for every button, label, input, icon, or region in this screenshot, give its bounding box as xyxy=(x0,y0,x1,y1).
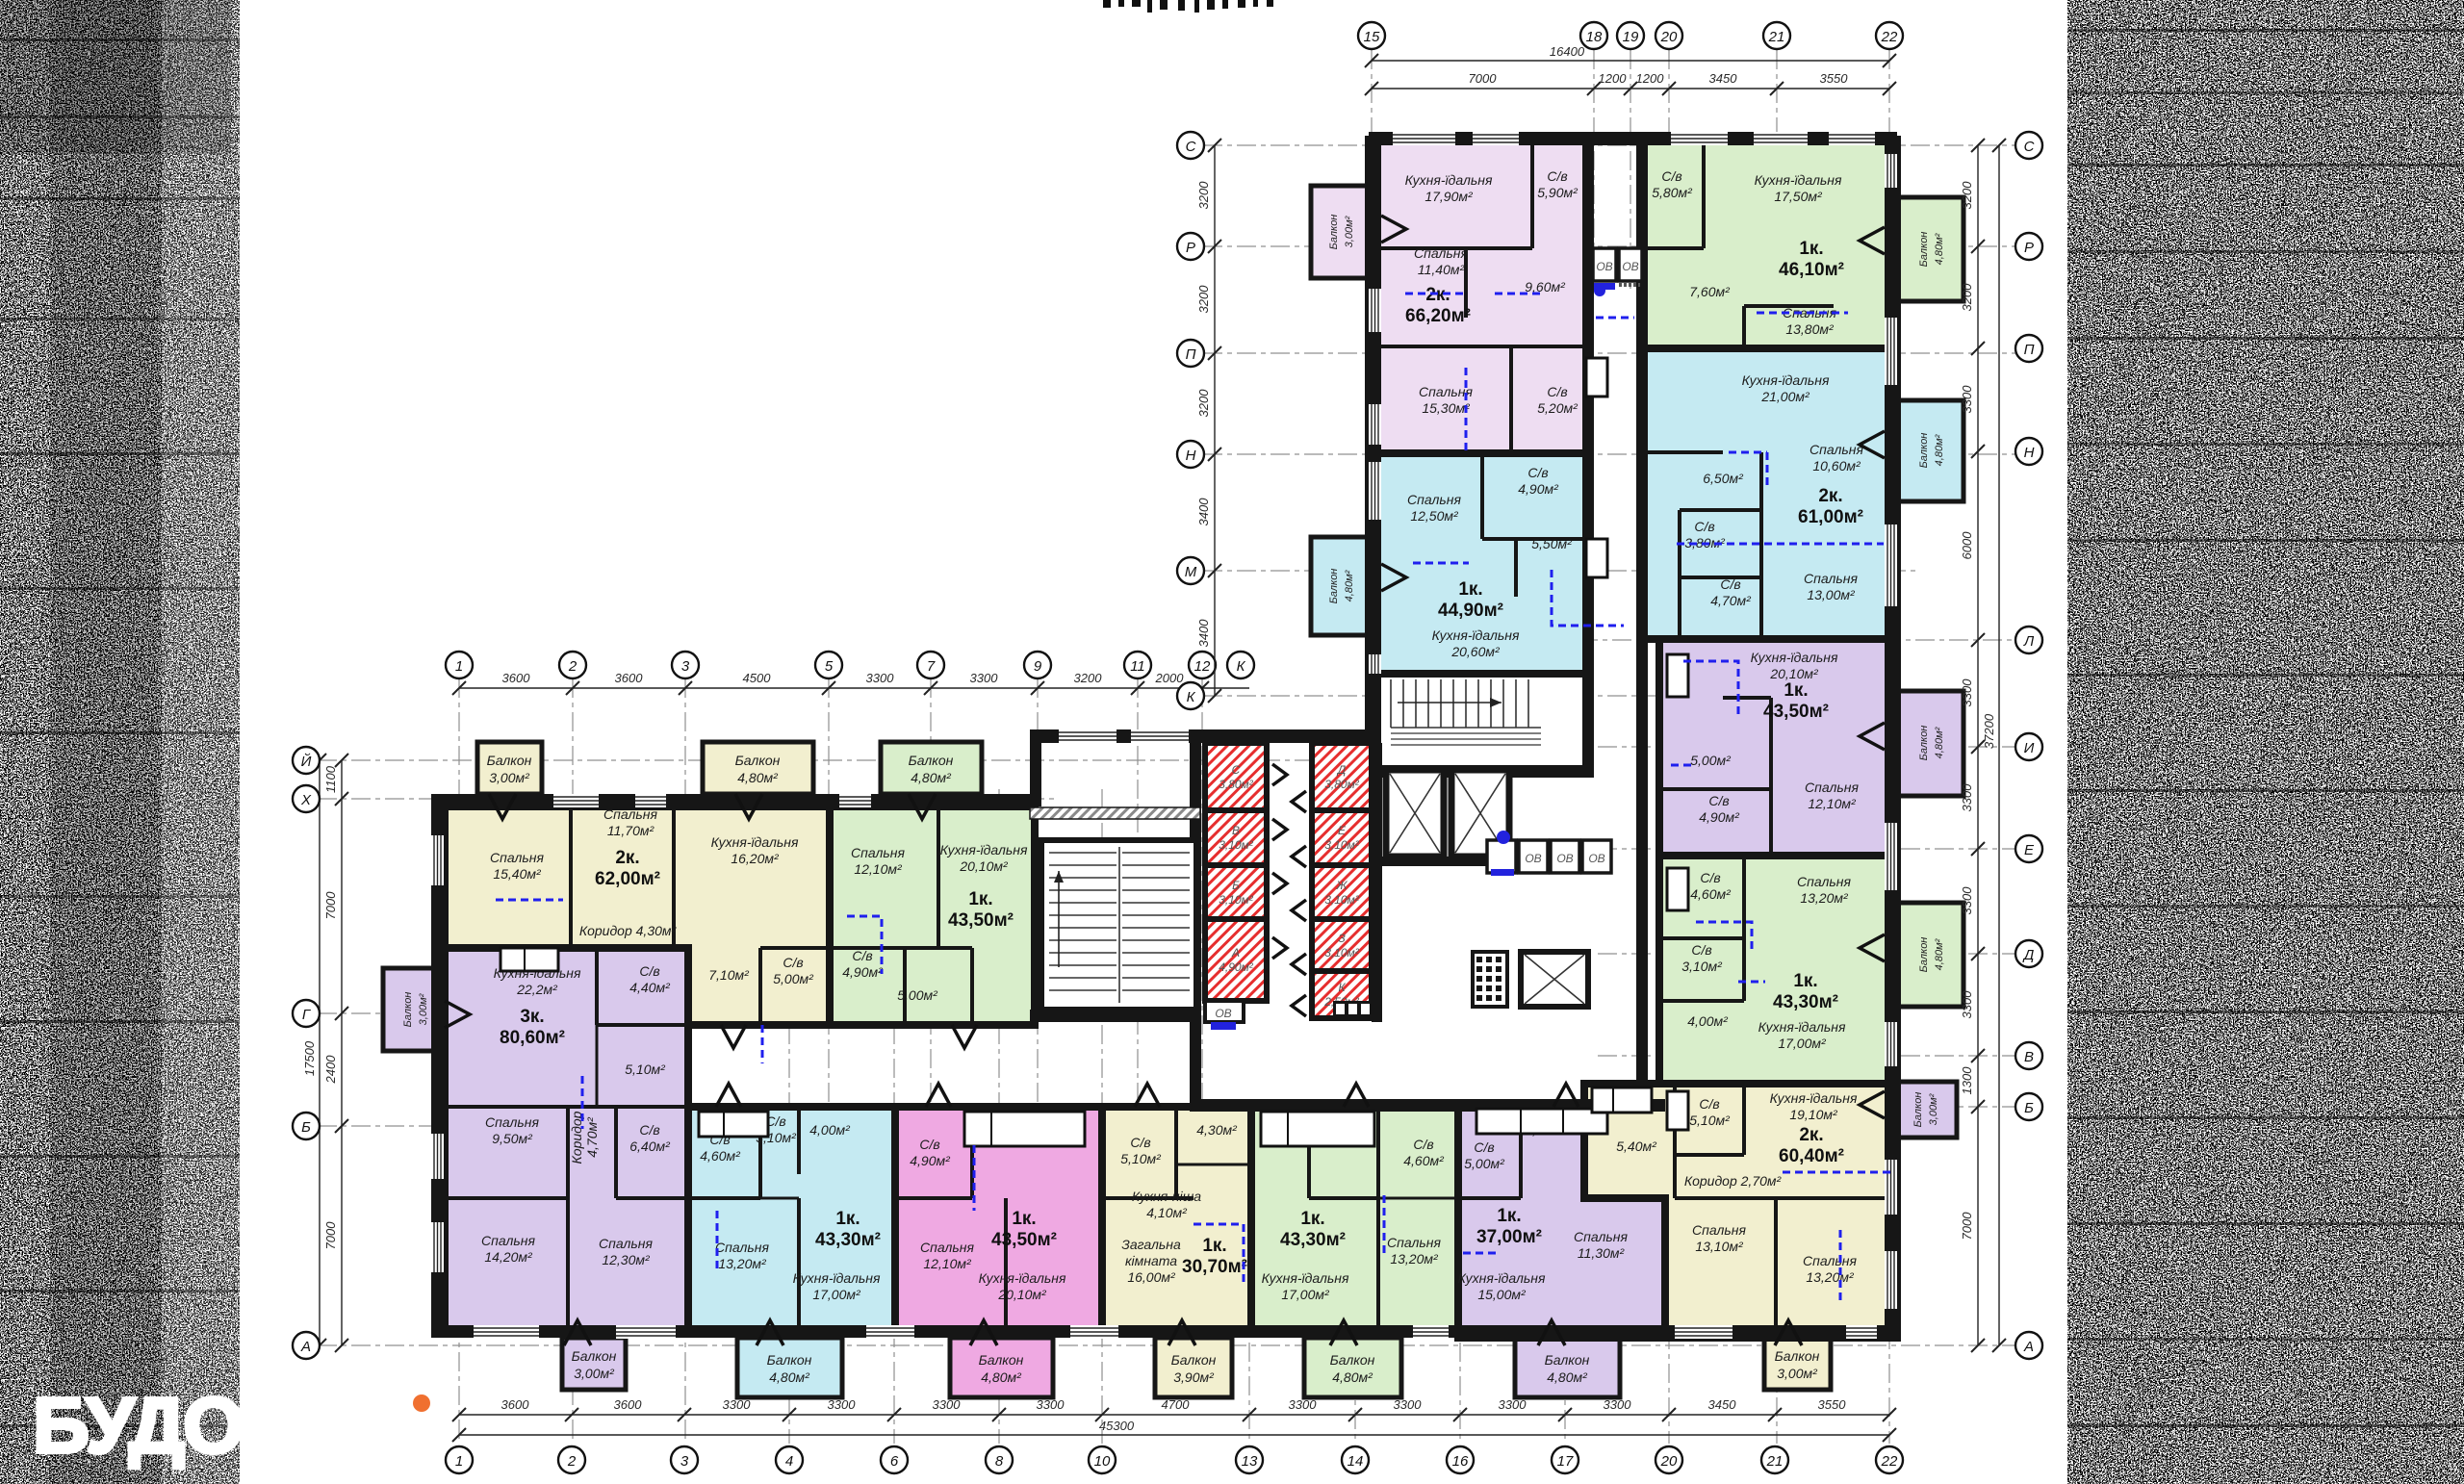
svg-text:3200: 3200 xyxy=(1196,285,1211,314)
svg-text:3300: 3300 xyxy=(970,671,999,685)
svg-text:Р: Р xyxy=(1186,240,1195,256)
svg-text:17,00м²: 17,00м² xyxy=(1281,1287,1330,1302)
svg-text:ОВ: ОВ xyxy=(1622,260,1638,273)
svg-text:Балкон: Балкон xyxy=(1328,215,1340,250)
svg-text:3,10м²: 3,10м² xyxy=(1219,893,1254,907)
svg-text:13,00м²: 13,00м² xyxy=(1807,587,1856,602)
svg-text:7000: 7000 xyxy=(323,1221,338,1250)
svg-text:3300: 3300 xyxy=(1960,678,1974,707)
svg-text:43,50м²: 43,50м² xyxy=(948,910,1014,931)
svg-text:Н: Н xyxy=(2024,445,2035,461)
svg-text:Спальня: Спальня xyxy=(851,845,905,860)
svg-text:13,20м²: 13,20м² xyxy=(1806,1269,1855,1285)
svg-text:4,30м²: 4,30м² xyxy=(1196,1122,1238,1138)
svg-text:Д: Д xyxy=(2022,947,2035,963)
svg-text:П: П xyxy=(2024,342,2035,358)
svg-text:5,10м²: 5,10м² xyxy=(1120,1151,1162,1166)
svg-text:4,80м²: 4,80м² xyxy=(1547,1369,1588,1385)
svg-text:5: 5 xyxy=(825,658,834,675)
svg-text:3: 3 xyxy=(680,1453,689,1470)
svg-text:3450: 3450 xyxy=(1709,71,1738,86)
svg-text:13,10м²: 13,10м² xyxy=(1695,1239,1744,1254)
svg-text:9: 9 xyxy=(1034,658,1042,675)
svg-text:3300: 3300 xyxy=(1394,1397,1423,1412)
svg-text:4,40м²: 4,40м² xyxy=(629,980,671,995)
svg-text:3к.: 3к. xyxy=(520,1007,544,1027)
svg-text:5,40м²: 5,40м² xyxy=(1616,1139,1657,1154)
svg-text:4,60м²: 4,60м² xyxy=(1690,886,1732,902)
svg-text:Х: Х xyxy=(300,792,312,808)
svg-text:Е: Е xyxy=(1338,824,1347,837)
svg-text:4,90м²: 4,90м² xyxy=(1518,481,1559,497)
svg-text:15,00м²: 15,00м² xyxy=(1477,1287,1527,1302)
svg-text:2к.: 2к. xyxy=(1799,1125,1823,1145)
svg-text:2: 2 xyxy=(567,1453,577,1470)
svg-text:17500: 17500 xyxy=(302,1040,317,1076)
svg-text:Кухня-їдальня: Кухня-їдальня xyxy=(1755,172,1842,188)
svg-text:3200: 3200 xyxy=(1196,181,1211,210)
svg-text:15: 15 xyxy=(1364,29,1380,45)
svg-text:4700: 4700 xyxy=(1162,1397,1191,1412)
svg-text:3,90м²: 3,90м² xyxy=(1173,1369,1215,1385)
svg-text:6000: 6000 xyxy=(1960,531,1974,560)
svg-text:4,80м²: 4,80м² xyxy=(1934,434,1945,466)
svg-text:11: 11 xyxy=(1130,658,1145,675)
svg-text:Спальня: Спальня xyxy=(1809,442,1863,457)
svg-text:7: 7 xyxy=(927,658,936,675)
svg-text:3300: 3300 xyxy=(723,1397,752,1412)
svg-text:Загальна: Загальна xyxy=(1121,1237,1181,1252)
svg-text:Коридор 2,70м²: Коридор 2,70м² xyxy=(1684,1173,1783,1189)
svg-text:4,70м²: 4,70м² xyxy=(1710,593,1752,608)
svg-text:3,00м²: 3,00м² xyxy=(1777,1366,1818,1381)
svg-text:3,10м²: 3,10м² xyxy=(1681,959,1723,974)
svg-text:1к.: 1к. xyxy=(1012,1209,1036,1229)
svg-text:С/в: С/в xyxy=(1694,519,1714,534)
svg-text:Спальня: Спальня xyxy=(1692,1222,1746,1238)
svg-text:С/в: С/в xyxy=(1700,870,1720,885)
svg-text:20: 20 xyxy=(1660,29,1678,45)
svg-text:3300: 3300 xyxy=(1960,886,1974,915)
svg-text:7,10м²: 7,10м² xyxy=(708,967,750,983)
svg-text:5,50м²: 5,50м² xyxy=(1531,536,1573,551)
svg-text:17: 17 xyxy=(1557,1453,1574,1470)
svg-text:3300: 3300 xyxy=(1604,1397,1632,1412)
svg-text:1к.: 1к. xyxy=(1799,239,1823,259)
svg-text:22: 22 xyxy=(1881,29,1898,45)
svg-text:2: 2 xyxy=(568,658,577,675)
svg-text:Кухня-їдальня: Кухня-їдальня xyxy=(979,1270,1066,1286)
svg-text:3,10м²: 3,10м² xyxy=(1324,946,1360,959)
svg-text:Кухня-їдальня: Кухня-їдальня xyxy=(1742,372,1830,388)
svg-text:11,30м²: 11,30м² xyxy=(1578,1245,1626,1261)
svg-text:5,20м²: 5,20м² xyxy=(1537,400,1578,416)
svg-text:21: 21 xyxy=(1768,29,1785,45)
svg-text:6,40м²: 6,40м² xyxy=(629,1139,671,1154)
svg-text:3400: 3400 xyxy=(1196,619,1211,648)
svg-text:С/в: С/в xyxy=(783,955,803,970)
svg-text:Балкон: Балкон xyxy=(572,1348,617,1364)
svg-text:Кухня-їдальня: Кухня-їдальня xyxy=(940,842,1028,857)
svg-text:кімната: кімната xyxy=(1125,1253,1177,1268)
svg-text:Спальня: Спальня xyxy=(1804,571,1858,586)
svg-text:А: А xyxy=(300,1339,311,1355)
svg-text:4,60м²: 4,60м² xyxy=(700,1148,741,1164)
svg-text:3,00м²: 3,00м² xyxy=(418,993,429,1025)
svg-text:Спальня: Спальня xyxy=(1407,492,1461,507)
svg-text:22,2м²: 22,2м² xyxy=(516,982,558,997)
svg-text:14: 14 xyxy=(1347,1453,1364,1470)
svg-text:1200: 1200 xyxy=(1636,71,1665,86)
svg-text:20: 20 xyxy=(1660,1453,1678,1470)
svg-text:4,70м²: 4,70м² xyxy=(584,1116,600,1158)
svg-text:5,80м²: 5,80м² xyxy=(1652,185,1693,200)
svg-text:Балкон: Балкон xyxy=(1918,232,1930,268)
svg-text:9,50м²: 9,50м² xyxy=(492,1131,533,1146)
svg-text:17,50м²: 17,50м² xyxy=(1774,189,1823,204)
svg-text:Балкон: Балкон xyxy=(1775,1348,1820,1364)
svg-text:1к.: 1к. xyxy=(968,889,992,909)
svg-text:3600: 3600 xyxy=(501,1397,530,1412)
svg-text:4,80м²: 4,80м² xyxy=(1934,233,1945,265)
svg-text:ОВ: ОВ xyxy=(1556,852,1573,865)
svg-text:1300: 1300 xyxy=(1960,1066,1974,1095)
svg-text:20,60м²: 20,60м² xyxy=(1450,644,1501,659)
svg-text:3200: 3200 xyxy=(1196,389,1211,418)
svg-text:Спальня: Спальня xyxy=(485,1114,539,1130)
svg-text:П: П xyxy=(1186,346,1196,363)
svg-text:3450: 3450 xyxy=(1708,1397,1737,1412)
svg-text:14,20м²: 14,20м² xyxy=(484,1249,533,1265)
svg-text:43,30м²: 43,30м² xyxy=(815,1230,881,1250)
svg-text:60,40м²: 60,40м² xyxy=(1779,1146,1844,1166)
svg-text:К: К xyxy=(1187,689,1196,705)
svg-text:С/в: С/в xyxy=(1527,465,1548,480)
svg-text:Кухня-їдальня: Кухня-їдальня xyxy=(1405,172,1493,188)
svg-text:12,10м²: 12,10м² xyxy=(854,861,903,877)
svg-text:Спальня: Спальня xyxy=(481,1233,535,1248)
svg-text:Балкон: Балкон xyxy=(402,992,414,1028)
svg-text:44,90м²: 44,90м² xyxy=(1438,601,1503,621)
svg-text:16400: 16400 xyxy=(1550,44,1585,59)
svg-text:Кухня-їдальня: Кухня-їдальня xyxy=(1262,1270,1349,1286)
svg-text:Й: Й xyxy=(301,753,312,770)
svg-text:4: 4 xyxy=(785,1453,793,1470)
svg-text:10,60м²: 10,60м² xyxy=(1812,458,1861,473)
svg-text:С/в: С/в xyxy=(1691,942,1711,958)
svg-text:5,10м²: 5,10м² xyxy=(1689,1113,1731,1128)
svg-text:43,50м²: 43,50м² xyxy=(1763,702,1829,722)
svg-text:В: В xyxy=(1232,824,1240,837)
svg-text:4,80м²: 4,80м² xyxy=(769,1369,810,1385)
svg-text:19,10м²: 19,10м² xyxy=(1789,1107,1838,1122)
svg-text:13,80м²: 13,80м² xyxy=(1785,321,1835,337)
svg-text:Спальня: Спальня xyxy=(920,1240,974,1255)
svg-text:62,00м²: 62,00м² xyxy=(595,869,660,889)
svg-text:12,10м²: 12,10м² xyxy=(1808,796,1857,811)
svg-text:12,50м²: 12,50м² xyxy=(1410,508,1459,524)
svg-text:Спальня: Спальня xyxy=(1414,245,1468,261)
svg-text:5,90м²: 5,90м² xyxy=(1537,185,1578,200)
svg-text:3: 3 xyxy=(681,658,690,675)
svg-text:С/в: С/в xyxy=(1708,793,1729,808)
svg-text:В: В xyxy=(2024,1049,2034,1065)
svg-text:Спальня: Спальня xyxy=(1387,1235,1441,1250)
svg-text:13,20м²: 13,20м² xyxy=(1800,890,1849,906)
svg-text:Кухня-їдальня: Кухня-їдальня xyxy=(1770,1090,1858,1106)
svg-text:С/в: С/в xyxy=(1661,168,1681,184)
svg-text:Спальня: Спальня xyxy=(1797,874,1851,889)
svg-text:Л: Л xyxy=(2023,633,2035,650)
svg-text:3600: 3600 xyxy=(615,671,644,685)
svg-text:С/в: С/в xyxy=(1413,1137,1433,1152)
svg-text:3300: 3300 xyxy=(1289,1397,1318,1412)
svg-text:46,10м²: 46,10м² xyxy=(1779,260,1844,280)
svg-text:3300: 3300 xyxy=(1499,1397,1527,1412)
svg-text:Балкон: Балкон xyxy=(1912,1092,1924,1128)
svg-text:11,70м²: 11,70м² xyxy=(607,823,655,838)
svg-text:Кухня-їдальня: Кухня-їдальня xyxy=(711,834,799,850)
svg-text:А: А xyxy=(2023,1339,2034,1355)
svg-text:3300: 3300 xyxy=(1037,1397,1065,1412)
svg-text:9,60м²: 9,60м² xyxy=(1525,279,1566,294)
svg-text:1200: 1200 xyxy=(1599,71,1628,86)
svg-text:3,00м²: 3,00м² xyxy=(574,1366,615,1381)
svg-text:Д: Д xyxy=(1336,763,1347,777)
svg-text:3300: 3300 xyxy=(828,1397,857,1412)
svg-text:43,30м²: 43,30м² xyxy=(1773,992,1838,1012)
svg-text:5,00м²: 5,00м² xyxy=(1464,1156,1505,1171)
svg-text:С/в: С/в xyxy=(852,948,872,963)
svg-text:4,80м²: 4,80м² xyxy=(911,770,952,785)
svg-text:5,00м²: 5,00м² xyxy=(897,987,938,1003)
svg-text:М: М xyxy=(1185,564,1197,580)
svg-text:12,30м²: 12,30м² xyxy=(602,1252,651,1267)
svg-text:61,00м²: 61,00м² xyxy=(1798,507,1863,527)
svg-text:43,30м²: 43,30м² xyxy=(1280,1230,1346,1250)
svg-text:Балкон: Балкон xyxy=(735,753,781,768)
svg-text:37,00м²: 37,00м² xyxy=(1476,1227,1542,1247)
svg-text:4,00м²: 4,00м² xyxy=(809,1122,851,1138)
svg-text:3,00м²: 3,00м² xyxy=(489,770,530,785)
svg-text:11,40м²: 11,40м² xyxy=(1418,262,1466,277)
svg-text:3,00м²: 3,00м² xyxy=(1928,1093,1939,1125)
svg-text:1к.: 1к. xyxy=(1497,1206,1521,1226)
svg-text:Спальня: Спальня xyxy=(1805,780,1859,795)
svg-text:16,20м²: 16,20м² xyxy=(731,851,780,866)
svg-text:3300: 3300 xyxy=(1960,385,1974,414)
svg-text:5,00м²: 5,00м² xyxy=(1690,753,1732,768)
svg-text:Балкон: Балкон xyxy=(487,753,532,768)
svg-text:Спальня: Спальня xyxy=(490,850,544,865)
svg-text:22: 22 xyxy=(1881,1453,1898,1470)
svg-text:10: 10 xyxy=(1094,1453,1111,1470)
svg-text:Балкон: Балкон xyxy=(909,753,954,768)
svg-text:4,90м²: 4,90м² xyxy=(1699,809,1740,825)
svg-text:С/в: С/в xyxy=(639,1122,659,1138)
svg-text:1к.: 1к. xyxy=(1300,1209,1324,1229)
svg-text:Коридор 4,30м²: Коридор 4,30м² xyxy=(579,923,678,938)
svg-text:С/в: С/в xyxy=(1130,1135,1150,1150)
svg-text:6: 6 xyxy=(890,1453,899,1470)
svg-text:7000: 7000 xyxy=(323,891,338,920)
svg-text:4,80м²: 4,80м² xyxy=(1344,570,1355,601)
svg-text:17,00м²: 17,00м² xyxy=(1778,1036,1827,1051)
svg-text:3,10м²: 3,10м² xyxy=(1219,838,1254,852)
svg-text:7000: 7000 xyxy=(1469,71,1498,86)
svg-text:19: 19 xyxy=(1623,29,1639,45)
svg-text:Е: Е xyxy=(2024,842,2035,858)
svg-text:2к.: 2к. xyxy=(615,848,639,868)
svg-text:И: И xyxy=(2024,740,2035,756)
svg-text:Балкон: Балкон xyxy=(979,1352,1024,1368)
svg-text:БУДО: БУДО xyxy=(33,1382,243,1470)
svg-text:Спальня: Спальня xyxy=(603,806,657,822)
svg-text:3600: 3600 xyxy=(614,1397,643,1412)
svg-text:Балкон: Балкон xyxy=(1918,433,1930,469)
svg-text:С: С xyxy=(1232,763,1241,777)
svg-text:4,90м²: 4,90м² xyxy=(842,964,884,980)
svg-text:3300: 3300 xyxy=(866,671,895,685)
svg-text:С/в: С/в xyxy=(1720,576,1740,592)
svg-text:3600: 3600 xyxy=(502,671,531,685)
svg-text:3550: 3550 xyxy=(1818,1397,1847,1412)
svg-text:Ж: Ж xyxy=(1335,879,1347,892)
svg-text:3300: 3300 xyxy=(933,1397,962,1412)
svg-text:Р: Р xyxy=(2024,240,2034,256)
svg-text:1к.: 1к. xyxy=(1793,971,1817,991)
svg-text:1к.: 1к. xyxy=(1202,1236,1226,1256)
svg-text:А: А xyxy=(1231,946,1240,959)
svg-text:4,80м²: 4,80м² xyxy=(1934,938,1945,970)
svg-text:15,30м²: 15,30м² xyxy=(1422,400,1471,416)
svg-text:ОВ: ОВ xyxy=(1588,852,1604,865)
svg-text:20,10м²: 20,10м² xyxy=(1769,666,1819,681)
svg-text:3,10м²: 3,10м² xyxy=(1324,893,1360,907)
svg-text:Балкон: Балкон xyxy=(1545,1352,1590,1368)
svg-text:Спальня: Спальня xyxy=(599,1236,653,1251)
svg-text:Б: Б xyxy=(1232,879,1240,892)
svg-text:К: К xyxy=(1237,658,1246,675)
svg-text:80,60м²: 80,60м² xyxy=(500,1028,565,1048)
svg-text:Б: Б xyxy=(301,1119,311,1136)
svg-text:Спальня: Спальня xyxy=(715,1240,769,1255)
svg-text:2000: 2000 xyxy=(1155,671,1185,685)
svg-text:К: К xyxy=(1338,981,1346,994)
svg-text:15,40м²: 15,40м² xyxy=(493,866,542,882)
svg-text:12: 12 xyxy=(1194,658,1211,675)
svg-text:3,80м²: 3,80м² xyxy=(1219,778,1254,791)
svg-text:2к.: 2к. xyxy=(1818,486,1842,506)
svg-text:7000: 7000 xyxy=(1960,1212,1974,1241)
svg-text:Б: Б xyxy=(2024,1100,2034,1116)
svg-text:21,00м²: 21,00м² xyxy=(1760,389,1810,404)
svg-text:1100: 1100 xyxy=(323,765,338,793)
svg-text:12,10м²: 12,10м² xyxy=(923,1256,972,1271)
svg-text:Балкон: Балкон xyxy=(1918,726,1930,761)
svg-text:16: 16 xyxy=(1452,1453,1469,1470)
svg-text:1к.: 1к. xyxy=(835,1209,860,1229)
svg-text:4,80м²: 4,80м² xyxy=(737,770,779,785)
svg-text:С/в: С/в xyxy=(1547,384,1567,399)
svg-text:3200: 3200 xyxy=(1960,283,1974,312)
svg-text:Кухня-їдальня: Кухня-їдальня xyxy=(1458,1270,1546,1286)
svg-text:1к.: 1к. xyxy=(1458,579,1482,600)
svg-text:Кухня-ніша: Кухня-ніша xyxy=(1132,1189,1201,1204)
svg-text:Балкон: Балкон xyxy=(1330,1352,1375,1368)
svg-text:Кухня-їдальня: Кухня-їдальня xyxy=(1758,1019,1846,1035)
svg-text:Балкон: Балкон xyxy=(767,1352,812,1368)
svg-text:С/в: С/в xyxy=(1699,1096,1719,1112)
svg-text:4,10м²: 4,10м² xyxy=(1146,1205,1188,1220)
svg-text:17,90м²: 17,90м² xyxy=(1424,189,1474,204)
svg-text:Кухня-їдальня: Кухня-їдальня xyxy=(793,1270,881,1286)
svg-text:Балкон: Балкон xyxy=(1918,937,1930,973)
svg-text:С: С xyxy=(2024,139,2035,155)
svg-text:ОВ: ОВ xyxy=(1596,260,1612,273)
svg-text:С/в: С/в xyxy=(639,963,659,979)
svg-text:6,50м²: 6,50м² xyxy=(1703,471,1744,486)
svg-text:4,80м²: 4,80м² xyxy=(1934,727,1945,758)
svg-text:4,80м²: 4,80м² xyxy=(1332,1369,1373,1385)
svg-text:ОВ: ОВ xyxy=(1525,852,1541,865)
svg-text:Спальня: Спальня xyxy=(1803,1253,1857,1268)
svg-text:8: 8 xyxy=(995,1453,1004,1470)
svg-text:20,10м²: 20,10м² xyxy=(959,858,1009,874)
svg-text:3550: 3550 xyxy=(1820,71,1849,86)
svg-text:1: 1 xyxy=(455,658,463,675)
svg-text:4,60м²: 4,60м² xyxy=(1403,1153,1445,1168)
svg-text:13,20м²: 13,20м² xyxy=(718,1256,767,1271)
svg-text:З: З xyxy=(1338,932,1346,945)
svg-text:18: 18 xyxy=(1586,29,1603,45)
svg-text:21: 21 xyxy=(1766,1453,1784,1470)
svg-text:30,70м²: 30,70м² xyxy=(1182,1257,1247,1277)
svg-text:3300: 3300 xyxy=(1960,783,1974,812)
svg-text:Балкон: Балкон xyxy=(1328,569,1340,604)
svg-text:37200: 37200 xyxy=(1982,713,1996,749)
svg-text:Балкон: Балкон xyxy=(1171,1352,1217,1368)
svg-text:5,00м²: 5,00м² xyxy=(773,971,814,986)
svg-text:13,20м²: 13,20м² xyxy=(1390,1251,1439,1267)
svg-text:43,50м²: 43,50м² xyxy=(991,1230,1057,1250)
svg-text:2400: 2400 xyxy=(323,1055,338,1085)
svg-text:17,00м²: 17,00м² xyxy=(812,1287,861,1302)
svg-text:3,00м²: 3,00м² xyxy=(1344,216,1355,247)
svg-text:45300: 45300 xyxy=(1099,1419,1135,1433)
svg-text:4500: 4500 xyxy=(743,671,772,685)
svg-text:3200: 3200 xyxy=(1074,671,1103,685)
svg-text:С/в: С/в xyxy=(919,1137,939,1152)
svg-text:3400: 3400 xyxy=(1196,498,1211,526)
svg-text:5,10м²: 5,10м² xyxy=(625,1062,666,1077)
svg-text:С/в: С/в xyxy=(1474,1139,1494,1155)
svg-text:С: С xyxy=(1186,139,1196,155)
svg-text:3,10м²: 3,10м² xyxy=(1324,838,1360,852)
svg-text:Кухня-їдальня: Кухня-їдальня xyxy=(1432,627,1520,643)
svg-text:Н: Н xyxy=(1186,448,1196,464)
svg-text:1: 1 xyxy=(455,1453,463,1470)
svg-text:С/в: С/в xyxy=(1547,168,1567,184)
svg-text:Кухня-їдальня: Кухня-їдальня xyxy=(1751,650,1838,665)
svg-text:66,20м²: 66,20м² xyxy=(1405,306,1471,326)
svg-text:1к.: 1к. xyxy=(1784,680,1808,701)
svg-text:20,10м²: 20,10м² xyxy=(997,1287,1047,1302)
svg-text:4,90м²: 4,90м² xyxy=(910,1153,951,1168)
svg-text:13: 13 xyxy=(1242,1453,1258,1470)
svg-text:ОВ: ОВ xyxy=(1215,1007,1231,1020)
svg-text:Спальня: Спальня xyxy=(1574,1229,1628,1244)
